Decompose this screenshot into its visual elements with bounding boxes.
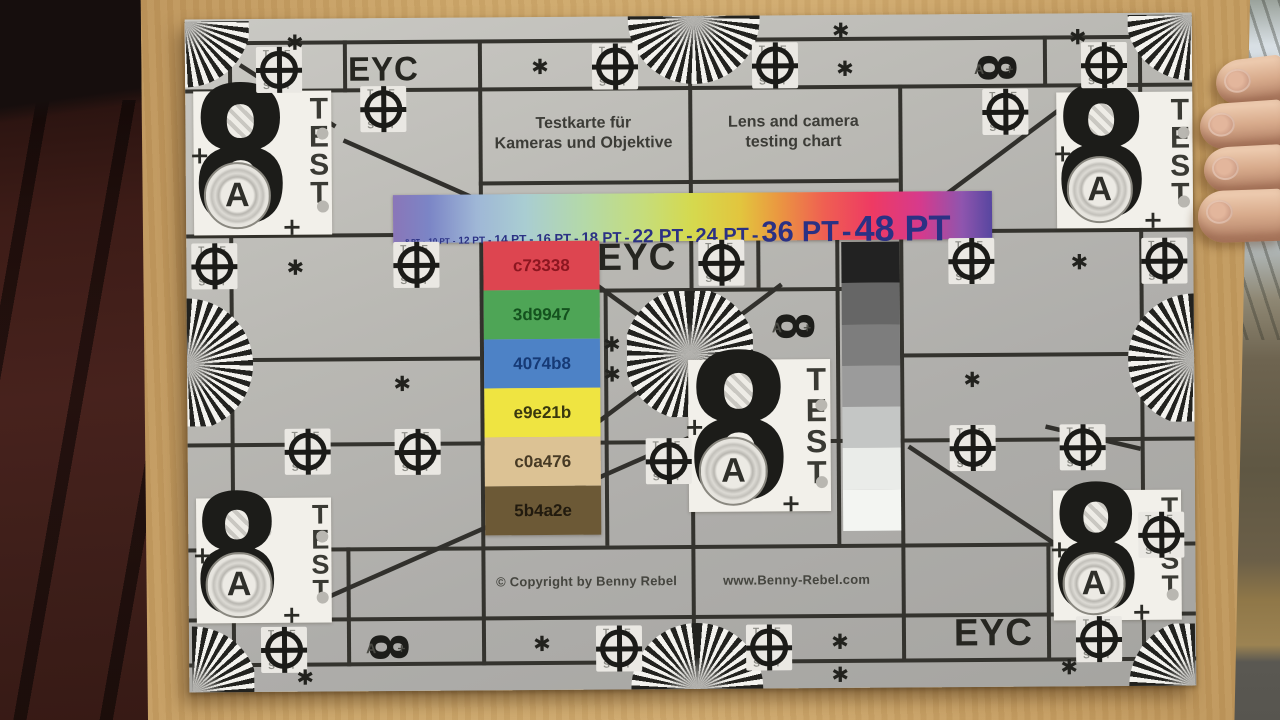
title-german-line1: Testkarte für — [535, 113, 631, 134]
asterisk-icon: ✱ — [831, 663, 849, 687]
asterisk-icon: ✱ — [531, 55, 549, 79]
eyc-label-bottom-right: EYC — [954, 613, 1033, 652]
gray-step-2 — [842, 283, 900, 325]
target-bar — [971, 425, 976, 471]
fingernail — [1207, 112, 1236, 138]
asterisk-icon: ✱ — [1069, 25, 1087, 49]
color-swatch-brown: 5b4a2e — [485, 486, 601, 536]
gray-step-1 — [841, 242, 899, 284]
asterisk-icon: ✱ — [1070, 250, 1088, 274]
gray-step-3 — [842, 324, 900, 366]
finger — [1199, 99, 1280, 151]
circled-letter-a: A — [206, 552, 273, 619]
plus-mark-icon: + — [190, 143, 210, 167]
sideways-eight-top-right: 8 A + — [965, 50, 1025, 90]
eyc-label-top-left: EYC — [348, 51, 419, 85]
fingernail — [1205, 199, 1233, 224]
asterisk-icon: ✱ — [287, 256, 305, 280]
crosshair-target-icon: TEST — [592, 43, 638, 89]
copyright-text: © Copyright by Benny Rebel — [481, 545, 691, 616]
siemens-star-right-icon — [1128, 293, 1195, 421]
color-swatch-red: c73338 — [483, 241, 599, 291]
fingernail — [1211, 155, 1239, 180]
color-swatch-yellow: e9e21b — [484, 388, 600, 438]
gray-step-7 — [843, 489, 901, 531]
swatch-hex-label: e9e21b — [514, 402, 572, 422]
crosshair-target-icon: TEST — [746, 624, 792, 670]
plus-mark-icon: + — [1143, 208, 1163, 232]
crosshair-target-icon: TEST — [948, 238, 994, 284]
asterisk-icon: ✱ — [296, 666, 314, 690]
color-swatch-blue: 4074b8 — [484, 339, 600, 389]
asterisk-icon: ✱ — [831, 630, 849, 654]
grayscale-step-wedge — [841, 242, 901, 531]
target-bar — [613, 43, 618, 89]
target-bar — [719, 240, 724, 286]
eight-test-block-top-right: 8 A TEST + + — [1056, 91, 1193, 228]
gray-step-6 — [843, 448, 901, 490]
target-bar — [212, 243, 217, 289]
crosshair-target-icon: TEST — [1060, 424, 1106, 470]
crosshair-target-icon: TEST — [360, 86, 406, 132]
target-bar — [1003, 89, 1008, 135]
letter-a: A — [974, 61, 984, 77]
plus-mark-icon: + — [781, 491, 801, 515]
plus-mark-icon: + — [282, 603, 302, 627]
asterisk-icon: ✱ — [1060, 655, 1078, 679]
gray-step-5 — [842, 407, 900, 449]
target-bar — [667, 438, 672, 484]
gray-step-4 — [842, 365, 900, 407]
finger — [1197, 188, 1280, 243]
asterisk-icon: ✱ — [286, 31, 304, 55]
hand-holding-chart — [1185, 50, 1280, 250]
target-bar — [1159, 512, 1164, 558]
target-bar — [1081, 424, 1086, 470]
crosshair-target-icon: TEST — [1081, 42, 1127, 88]
crosshair-target-icon: TEST — [752, 42, 798, 88]
eight-test-block-top-left: 8 A TEST + + — [193, 91, 332, 236]
pt-size-rainbow-bar: 8 PT- 10 PT- 12 PT- 14 PT- 16 PT- 18 PT-… — [393, 191, 992, 243]
gray-dot-icon — [316, 530, 328, 542]
target-bar — [767, 624, 772, 670]
swatch-hex-label: 4074b8 — [513, 353, 571, 373]
target-bar — [1162, 238, 1167, 284]
target-bar — [416, 429, 421, 475]
color-swatch-green: 3d9947 — [484, 290, 600, 340]
finger — [1203, 144, 1280, 194]
swatch-hex-label: c0a476 — [514, 451, 571, 471]
gray-dot-icon — [816, 476, 828, 488]
title-english: Lens and camera testing chart — [688, 85, 899, 180]
siemens-star-top-center-icon — [628, 16, 760, 85]
crosshair-target-icon: TEST — [1076, 616, 1122, 662]
crosshair-target-icon: TEST — [395, 429, 441, 475]
swatch-hex-label: c73338 — [513, 255, 570, 275]
sideways-eight-bottom-left: 8 A + — [357, 629, 417, 669]
gray-dot-icon — [815, 399, 827, 411]
gray-dot-icon — [1167, 588, 1179, 600]
target-bar — [617, 625, 622, 671]
title-german: Testkarte für Kameras und Objektive — [478, 86, 689, 181]
asterisk-icon: ✱ — [533, 632, 551, 656]
gray-dot-icon — [317, 592, 329, 604]
asterisk-icon: ✱ — [603, 332, 621, 356]
target-bar — [1102, 42, 1107, 88]
color-swatch-column: c73338 3d9947 4074b8 e9e21b c0a476 5b4a2… — [483, 241, 601, 536]
vertical-test-label: TEST — [800, 361, 833, 485]
siemens-star-bottom-center-icon — [631, 623, 763, 690]
crosshair-target-icon: TEST — [191, 243, 237, 289]
color-swatch-tan: c0a476 — [485, 437, 601, 487]
plus-mark-icon: + — [803, 321, 812, 334]
target-bar — [773, 42, 778, 88]
target-bar — [1097, 616, 1102, 662]
asterisk-icon: ✱ — [603, 362, 621, 386]
plus-mark-icon: + — [1053, 141, 1073, 165]
target-bar — [306, 429, 311, 475]
asterisk-icon: ✱ — [832, 19, 850, 43]
target-bar — [277, 47, 282, 93]
target-bar — [969, 238, 974, 284]
lens-test-chart: 8 PT- 10 PT- 12 PT- 14 PT- 16 PT- 18 PT-… — [185, 12, 1197, 692]
target-bar — [414, 242, 419, 288]
swatch-hex-label: 5b4a2e — [514, 500, 572, 520]
crosshair-target-icon: TEST — [596, 625, 642, 671]
dark-wall-background — [0, 0, 148, 720]
plus-mark-icon: + — [1005, 63, 1014, 76]
pt-separator: - — [453, 237, 456, 246]
plus-mark-icon: + — [192, 543, 212, 567]
eyc-label-center: EYC — [597, 238, 676, 277]
crosshair-target-icon: TEST — [285, 429, 331, 475]
swatch-hex-label: 3d9947 — [513, 304, 571, 324]
photo-scene: 8 PT- 10 PT- 12 PT- 14 PT- 16 PT- 18 PT-… — [0, 0, 1280, 720]
plus-mark-icon: + — [684, 415, 704, 439]
title-german-line2: Kameras und Objektive — [495, 133, 673, 154]
target-bar — [282, 627, 287, 673]
crosshair-target-icon: TEST — [1141, 238, 1187, 284]
pt-separator: - — [752, 225, 759, 248]
plus-mark-icon: + — [1049, 537, 1069, 561]
gray-dot-icon — [317, 201, 329, 213]
vertical-test-label: TEST — [303, 92, 334, 204]
circled-letter-a: A — [699, 436, 769, 506]
crosshair-target-icon: TEST — [950, 425, 996, 471]
letter-a: A — [772, 319, 782, 335]
plus-mark-icon: + — [1132, 600, 1152, 624]
asterisk-icon: ✱ — [836, 57, 854, 81]
fingernail — [1223, 67, 1253, 94]
target-bar — [381, 86, 386, 132]
circled-letter-a: A — [1066, 156, 1133, 223]
pt-label-12: 12 PT — [458, 235, 485, 246]
vertical-test-label: TEST — [306, 499, 334, 599]
crosshair-target-icon: TEST — [1138, 512, 1184, 558]
title-english-line1: Lens and camera — [728, 112, 859, 133]
asterisk-icon: ✱ — [963, 368, 981, 392]
sideways-eight-center: 8 A + — [763, 308, 823, 348]
letter-a: A — [366, 640, 376, 656]
pt-separator: - — [686, 226, 692, 248]
pt-label-36: 36 PT — [761, 216, 839, 250]
crosshair-target-icon: TEST — [393, 242, 439, 288]
eight-test-block-center: 8 A TEST + + — [688, 359, 831, 512]
circled-letter-a: A — [1062, 552, 1125, 615]
eight-test-block-bottom-left: 8 A TEST + + — [196, 498, 332, 624]
plus-mark-icon: + — [282, 215, 302, 239]
crosshair-target-icon: TEST — [698, 240, 744, 286]
siemens-star-left-icon — [187, 298, 254, 426]
crosshair-target-icon: TEST — [646, 438, 692, 484]
title-english-line2: testing chart — [745, 132, 841, 153]
plus-mark-icon: + — [397, 642, 406, 655]
asterisk-icon: ✱ — [393, 372, 411, 396]
crosshair-target-icon: TEST — [982, 89, 1028, 135]
website-text: www.Benny-Rebel.com — [691, 544, 901, 615]
